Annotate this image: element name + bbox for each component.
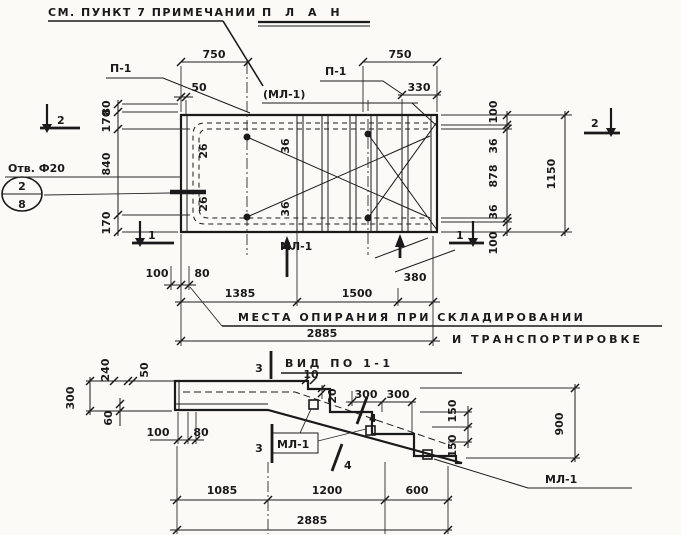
support-note-leader — [190, 287, 222, 326]
support-zone-lines — [375, 238, 455, 272]
dim-900: 900 — [553, 412, 566, 435]
ml1-right-leader — [434, 459, 632, 488]
dim-170-top: 170 — [100, 109, 113, 132]
rebar-outline-outer — [193, 123, 428, 224]
dim-100-bl: 100 — [146, 267, 169, 280]
side-view-1-1: ВИД ПО 1-1 3 3 МЛ-1 МЛ-1 4 4 300 240 50 … — [64, 351, 632, 534]
right-chain-ticks — [503, 111, 569, 236]
support-note-line2: И ТРАНСПОРТИРОВКЕ — [452, 333, 643, 346]
dim-1385: 1385 — [225, 287, 256, 300]
stair-profile-inner — [175, 381, 268, 410]
dim-100-view: 100 — [147, 426, 170, 439]
dim-150-b: 150 — [446, 434, 459, 457]
dim-300-left: 300 — [64, 386, 77, 409]
dim-240: 240 — [99, 358, 112, 381]
support-arrow-right-head — [395, 234, 405, 247]
dim-36-bottom: 36 — [279, 201, 292, 217]
section2-left-label: 2 — [57, 114, 65, 127]
dim-840: 840 — [100, 152, 113, 175]
dim-50: 50 — [191, 81, 207, 94]
dim-750-right: 750 — [389, 48, 412, 61]
ml1-right-label: МЛ-1 — [545, 473, 577, 486]
note-leader — [223, 21, 263, 86]
hole-label: Отв. Ф20 — [8, 162, 65, 175]
dim-2885-plan: 2885 — [307, 327, 338, 340]
balloon-top: 2 — [18, 180, 26, 193]
dim-300-tread-a: 300 — [355, 388, 378, 401]
dim-600: 600 — [406, 484, 429, 497]
dim-300-tread-b: 300 — [387, 388, 410, 401]
support-note-line1: МЕСТА ОПИРАНИЯ ПРИ СКЛАДИРОВАНИИ — [238, 311, 585, 324]
section4-label-a: 4 — [369, 412, 377, 425]
dim-20: 20 — [326, 388, 339, 404]
p1-right-leader — [320, 81, 402, 94]
dim-36-right-top: 36 — [487, 138, 500, 154]
note-text: СМ. ПУНКТ 7 ПРИМЕЧАНИИ — [48, 6, 257, 19]
stair-flight-drawing: СМ. ПУНКТ 7 ПРИМЕЧАНИИ П Л А Н (МЛ-1) П-… — [0, 0, 681, 535]
section2-right-label: 2 — [591, 117, 599, 130]
dim-100-top: 100 — [487, 100, 500, 123]
top-dim-extensions — [181, 66, 437, 115]
blueprint-sheet: СМ. ПУНКТ 7 ПРИМЕЧАНИИ П Л А Н (МЛ-1) П-… — [0, 0, 681, 535]
ml1-left-leaders — [300, 409, 366, 441]
p1-left-leader — [106, 78, 250, 113]
balloon-bottom: 8 — [18, 198, 26, 211]
rebar-outline-inner — [199, 129, 428, 218]
dim-60: 60 — [102, 410, 115, 426]
plan-view: СМ. ПУНКТ 7 ПРИМЕЧАНИИ П Л А Н (МЛ-1) П-… — [2, 6, 662, 346]
dim-750-left: 750 — [203, 48, 226, 61]
section4-slash-b — [332, 444, 342, 471]
p1-left-label: П-1 — [110, 62, 131, 75]
section4-slash-a — [357, 397, 367, 424]
view-left-dim-lines — [86, 377, 204, 440]
dim-1150: 1150 — [545, 158, 558, 189]
top-dim-ticks — [177, 58, 441, 101]
dim-150-a: 150 — [446, 399, 459, 422]
dim-330: 330 — [408, 81, 431, 94]
dim-80-view: 80 — [193, 426, 209, 439]
dim-36-top: 36 — [279, 138, 292, 154]
dim-20-ticks — [318, 385, 325, 397]
ml1-bottom-label: МЛ-1 — [280, 240, 312, 253]
section3-top-label: 3 — [255, 362, 263, 375]
section3-bottom-label: 3 — [255, 442, 263, 455]
dim-26-top: 26 — [197, 143, 210, 159]
plan-outline — [181, 115, 437, 232]
ml1-callout: (МЛ-1) — [263, 88, 305, 101]
dim-2885-view: 2885 — [297, 514, 328, 527]
section4-label-b: 4 — [344, 459, 352, 472]
p1-right-label: П-1 — [325, 65, 346, 78]
dim-26-bottom: 26 — [197, 196, 210, 212]
dim-1085: 1085 — [207, 484, 238, 497]
dim-1500: 1500 — [342, 287, 373, 300]
dim-10: 10 — [303, 368, 319, 381]
ml1-left-label: МЛ-1 — [277, 438, 309, 451]
left-chain-extensions — [122, 104, 190, 232]
dim-36-right-bottom: 36 — [487, 204, 500, 220]
dim-878: 878 — [487, 165, 500, 188]
dim-380: 380 — [404, 271, 427, 284]
dim-1200: 1200 — [312, 484, 343, 497]
dim-100-bottom: 100 — [487, 231, 500, 254]
dim-80-bl: 80 — [194, 267, 210, 280]
view-title: ВИД ПО 1-1 — [285, 357, 393, 370]
plan-ribs — [297, 115, 408, 232]
section1-right-label: 1 — [456, 229, 464, 242]
dim-50-view: 50 — [138, 362, 151, 378]
plan-end-plates — [187, 115, 431, 232]
anchor-loop-1 — [309, 400, 318, 409]
top-dim-lines — [174, 62, 441, 97]
section1-left-label: 1 — [148, 229, 156, 242]
plan-title: П Л А Н — [262, 6, 345, 19]
dim-170-bottom: 170 — [100, 211, 113, 234]
